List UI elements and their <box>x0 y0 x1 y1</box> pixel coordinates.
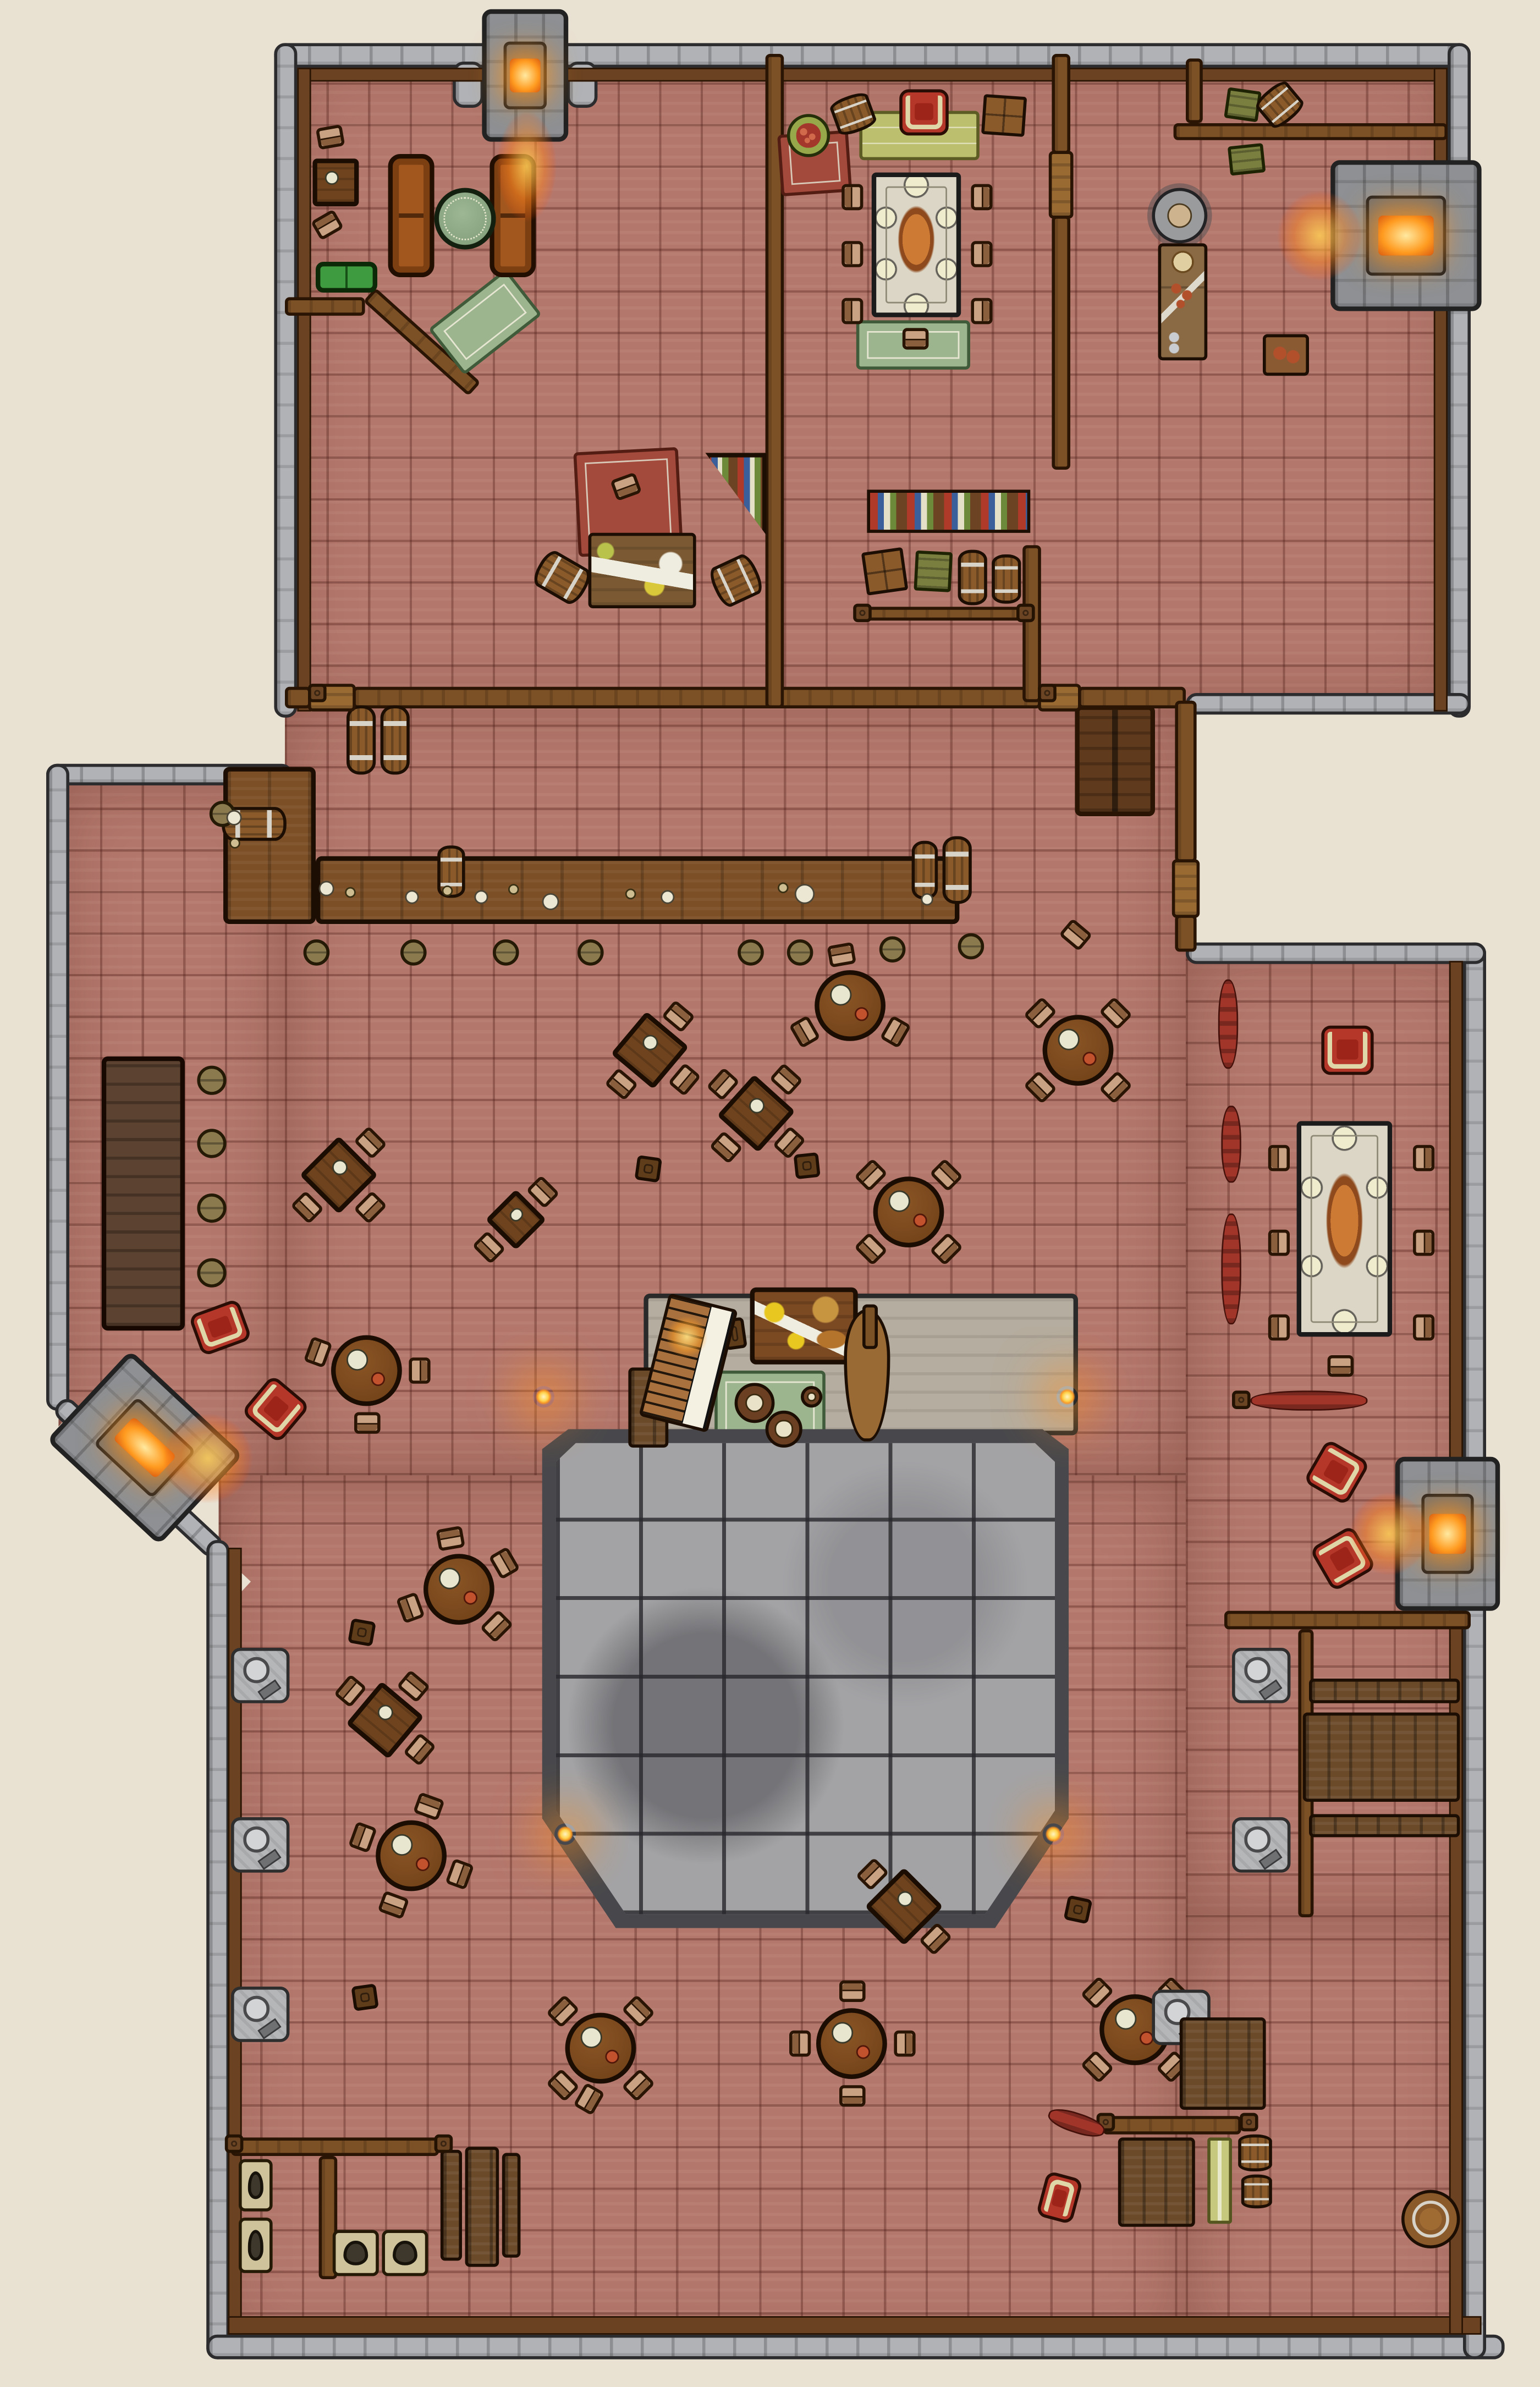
dining-chair-south <box>903 328 929 349</box>
bar-plate <box>795 884 815 904</box>
armor-display <box>231 1648 289 1703</box>
wall-lining <box>228 2316 1481 2335</box>
cellar-trapdoor <box>1075 705 1155 816</box>
hall-end-table <box>348 1618 376 1647</box>
lumber-stack <box>1118 2137 1195 2226</box>
table-chair <box>893 2031 915 2057</box>
hall-round-table <box>331 1335 402 1406</box>
privy-screen <box>441 2150 462 2261</box>
outer-wall-notch <box>1186 693 1471 714</box>
hall-top-wall <box>285 687 311 708</box>
dining-armchair <box>899 89 949 135</box>
office-desk <box>588 533 696 608</box>
armor-display <box>1232 1648 1290 1703</box>
storage-cask-1 <box>1238 2135 1272 2171</box>
lounge-bench <box>316 262 377 293</box>
dining-barrel-low-2 <box>992 554 1021 604</box>
bar-stool <box>958 933 985 960</box>
nook-curtain <box>1221 1213 1241 1324</box>
hall-round-table <box>815 970 886 1041</box>
hand-drum <box>735 1383 775 1423</box>
corridor-barrel-2 <box>381 705 410 774</box>
bar-mug <box>778 882 789 893</box>
dining-stew-pot <box>787 114 830 157</box>
hall-end-table <box>351 1983 379 2011</box>
hall-end-table <box>635 1155 663 1183</box>
table-chair <box>354 1412 380 1434</box>
long-table-stool <box>197 1258 226 1288</box>
nook-bottom-beam <box>1224 1611 1471 1630</box>
bar-stool <box>493 939 519 966</box>
lumber-stack <box>1303 1713 1460 1802</box>
stage-torch <box>554 1823 576 1845</box>
wall-torch <box>1057 1386 1078 1407</box>
lumber-stack <box>1180 2017 1266 2110</box>
kitchen-stove <box>1152 188 1207 244</box>
nook-curtain-horizontal <box>1251 1390 1368 1410</box>
lounge-fireplace <box>482 9 568 142</box>
bar-plate <box>319 881 334 897</box>
lounge-corner-table <box>312 158 359 206</box>
privy-screen <box>465 2147 499 2267</box>
dining-bookshelf <box>867 490 1030 532</box>
corridor-barrel-1 <box>346 705 376 774</box>
dining-chair <box>971 241 992 267</box>
nook-chair-south <box>1328 1355 1354 1377</box>
long-table-stool <box>197 1193 226 1223</box>
lounge-couch-right <box>490 154 536 277</box>
bar-plate <box>921 893 933 905</box>
dining-rail <box>858 607 1024 620</box>
wall-post <box>435 2135 453 2153</box>
instrument-table <box>750 1288 858 1365</box>
dining-chair <box>842 184 863 211</box>
dining-chair <box>971 184 992 211</box>
bar-plate <box>542 893 559 910</box>
hall-round-table <box>376 1821 447 1891</box>
nook-chair <box>1413 1145 1434 1171</box>
bar-mug <box>508 884 519 895</box>
bar-mug <box>442 886 453 897</box>
hall-round-table <box>816 2008 887 2079</box>
hall-round-table <box>873 1176 944 1247</box>
kitchen-crate-2 <box>1228 143 1266 176</box>
wall-lining <box>297 68 311 711</box>
privy-toilet <box>333 2230 379 2276</box>
nook-armchair <box>1321 1026 1373 1075</box>
tavern-battle-map <box>0 0 1540 2387</box>
bar-stool <box>787 939 813 966</box>
nook-curtain <box>1218 980 1238 1069</box>
dining-crate-low <box>861 547 909 596</box>
armor-display <box>231 1817 289 1873</box>
nook-long-table <box>1297 1121 1393 1336</box>
kitchen-cutting-board <box>1263 334 1309 376</box>
hanging-towel <box>1207 2137 1232 2224</box>
stone-stage <box>542 1429 1069 1928</box>
lounge-round-table <box>435 188 496 250</box>
bar-stool <box>304 939 330 966</box>
long-table-stool <box>197 1129 226 1158</box>
outer-wall-right-upper <box>1448 43 1471 717</box>
outer-wall-left <box>46 764 69 1411</box>
privy-toilet <box>239 2218 273 2273</box>
wall-lining <box>1449 961 1463 2335</box>
outer-wall-left-lower <box>206 1540 229 2359</box>
storage-beam <box>1103 2116 1241 2135</box>
nook-curtain <box>1221 1105 1241 1182</box>
outer-wall-right-lower <box>1463 943 1486 2359</box>
kitchen-nook-beam <box>1174 123 1448 140</box>
wall-torch <box>533 1386 554 1407</box>
table-chair <box>839 2085 865 2106</box>
hall-right-wall <box>1175 701 1196 862</box>
hall-end-table <box>1063 1895 1092 1924</box>
lumber-stack <box>1309 1814 1460 1837</box>
nook-chair <box>1268 1230 1290 1256</box>
hall-round-table <box>424 1554 494 1625</box>
nook-chair <box>1413 1230 1434 1256</box>
storage-floor <box>1186 1917 1482 2356</box>
privy-toilet <box>382 2230 428 2276</box>
bar-mug <box>345 887 356 898</box>
nook-chair <box>1268 1314 1290 1341</box>
hall-top-wall <box>1078 687 1186 708</box>
nook-chair <box>1413 1314 1434 1341</box>
wall-post <box>1016 604 1035 623</box>
bar-stool <box>577 939 604 966</box>
hall-top-wall <box>353 687 1041 708</box>
table-chair <box>408 1357 430 1384</box>
left-wall-long-table <box>102 1057 185 1330</box>
bar-plate <box>227 810 242 826</box>
hall-end-table <box>794 1152 821 1179</box>
corner-barrel <box>1401 2190 1460 2248</box>
bar-plate <box>661 890 674 904</box>
wall-post <box>1038 684 1057 702</box>
bar-stool <box>400 939 427 966</box>
privy-screen <box>502 2153 521 2257</box>
dining-barrel-low-1 <box>958 550 987 606</box>
nook-top-wall <box>1186 943 1486 964</box>
dining-kitchen-wall-low <box>1022 545 1041 702</box>
dining-long-table <box>872 173 961 317</box>
right-wall-fireplace <box>1395 1457 1500 1611</box>
stage-torch <box>1043 1823 1064 1845</box>
wall-post <box>1240 2113 1258 2132</box>
table-chair <box>839 1981 865 2002</box>
hall-right-door <box>1172 859 1200 917</box>
bar-stool <box>879 936 906 963</box>
privy-toilet <box>239 2159 273 2212</box>
dining-chair <box>842 241 863 267</box>
lumber-stack <box>1309 1679 1460 1703</box>
wall-lining <box>297 68 1448 81</box>
kitchen-prep-table <box>1158 243 1208 360</box>
bar-mug <box>229 838 240 849</box>
bar-mug <box>625 889 636 900</box>
bar-plate <box>474 890 488 904</box>
hand-drum <box>801 1386 822 1407</box>
armor-display <box>231 1987 289 2042</box>
armor-display <box>1232 1817 1290 1873</box>
privy-beam <box>231 2137 439 2156</box>
outer-wall-bottom <box>206 2335 1504 2359</box>
hall-right-wall <box>1175 915 1196 952</box>
wall-post <box>225 2135 244 2153</box>
dining-chair <box>842 298 863 324</box>
dining-crate-green <box>914 551 953 592</box>
hall-round-table <box>565 2013 636 2084</box>
lounge-couch-left <box>388 154 435 277</box>
dining-crate-top <box>981 94 1027 137</box>
bar-cask-3 <box>943 836 972 904</box>
nook-chair <box>1268 1145 1290 1171</box>
table-chair <box>789 2031 810 2057</box>
map-canvas <box>0 0 1540 2387</box>
wall-post <box>853 604 872 623</box>
dining-chair <box>971 298 992 324</box>
dining-kitchen-door <box>1049 151 1074 218</box>
long-table-stool <box>197 1066 226 1095</box>
lounge-chair-top <box>316 124 345 150</box>
dining-kitchen-wall <box>1052 54 1070 154</box>
hand-drum <box>766 1411 802 1448</box>
outer-wall-left-upper <box>274 43 297 717</box>
bar-plate <box>405 890 419 904</box>
outer-wall-top <box>274 43 1471 68</box>
hall-round-table <box>1043 1015 1114 1086</box>
lounge-office-wall <box>285 297 365 316</box>
kitchen-nook-post <box>1186 58 1203 123</box>
wall-post <box>1232 1390 1251 1409</box>
bar-cask-2 <box>912 841 938 899</box>
dining-kitchen-wall <box>1052 216 1070 470</box>
bar-stool <box>738 939 764 966</box>
storage-cask-2 <box>1241 2175 1272 2209</box>
wall-post <box>308 684 327 702</box>
kitchen-fireplace <box>1330 160 1481 311</box>
